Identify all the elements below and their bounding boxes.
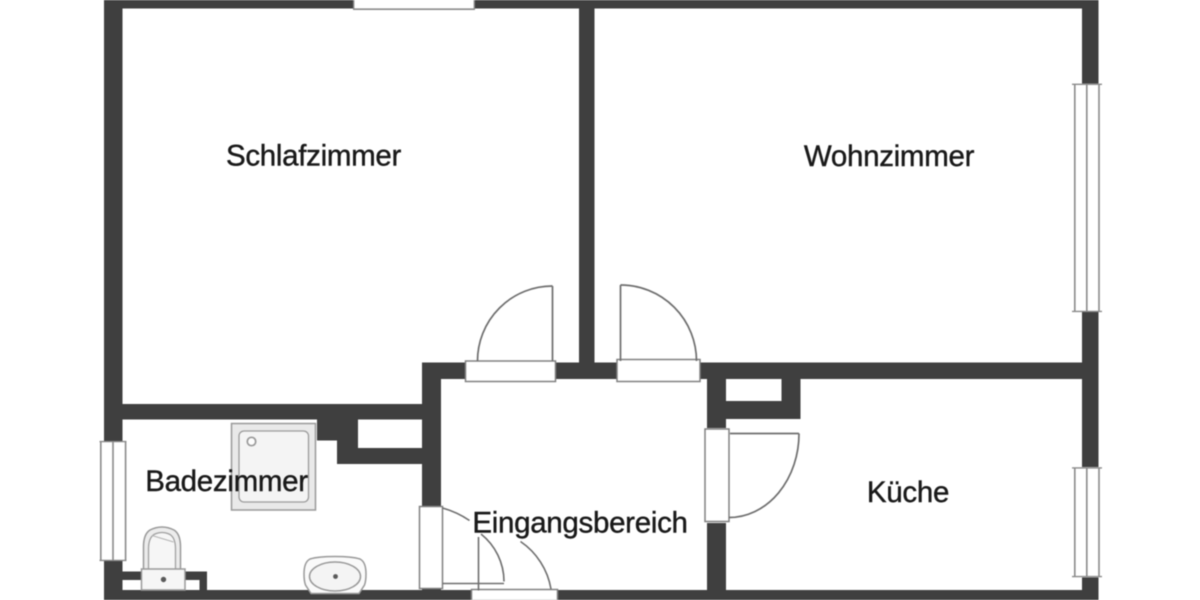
svg-text:Schlafzimmer: Schlafzimmer (226, 140, 402, 173)
svg-text:Badezimmer: Badezimmer (145, 465, 308, 498)
svg-text:Wohnzimmer: Wohnzimmer (804, 140, 975, 173)
svg-text:Eingangsbereich: Eingangsbereich (472, 507, 687, 540)
svg-text:Küche: Küche (867, 476, 949, 509)
